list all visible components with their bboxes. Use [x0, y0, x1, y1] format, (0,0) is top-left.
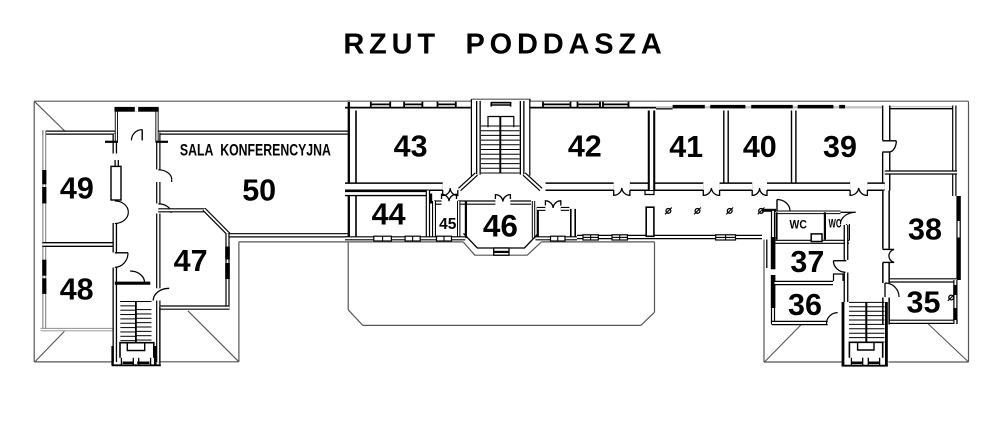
- svg-text:RZUT PODDASZA: RZUT PODDASZA: [343, 29, 666, 61]
- svg-text:50: 50: [242, 173, 276, 207]
- svg-text:38: 38: [908, 212, 942, 246]
- svg-text:36: 36: [788, 288, 822, 322]
- svg-text:WC: WC: [790, 218, 808, 232]
- svg-text:SALA KONFERENCYJNA: SALA KONFERENCYJNA: [180, 141, 331, 160]
- svg-text:42: 42: [568, 130, 602, 164]
- svg-text:35: 35: [907, 285, 941, 319]
- svg-text:47: 47: [174, 244, 208, 278]
- svg-text:37: 37: [790, 245, 824, 279]
- svg-text:41: 41: [669, 130, 703, 164]
- svg-text:39: 39: [823, 130, 857, 164]
- svg-text:44: 44: [372, 198, 406, 232]
- svg-text:WC: WC: [829, 216, 842, 230]
- svg-text:48: 48: [60, 272, 94, 306]
- svg-text:46: 46: [483, 207, 518, 243]
- svg-text:49: 49: [60, 171, 94, 205]
- svg-text:40: 40: [743, 130, 777, 164]
- svg-text:45: 45: [439, 216, 457, 233]
- svg-text:43: 43: [394, 129, 428, 163]
